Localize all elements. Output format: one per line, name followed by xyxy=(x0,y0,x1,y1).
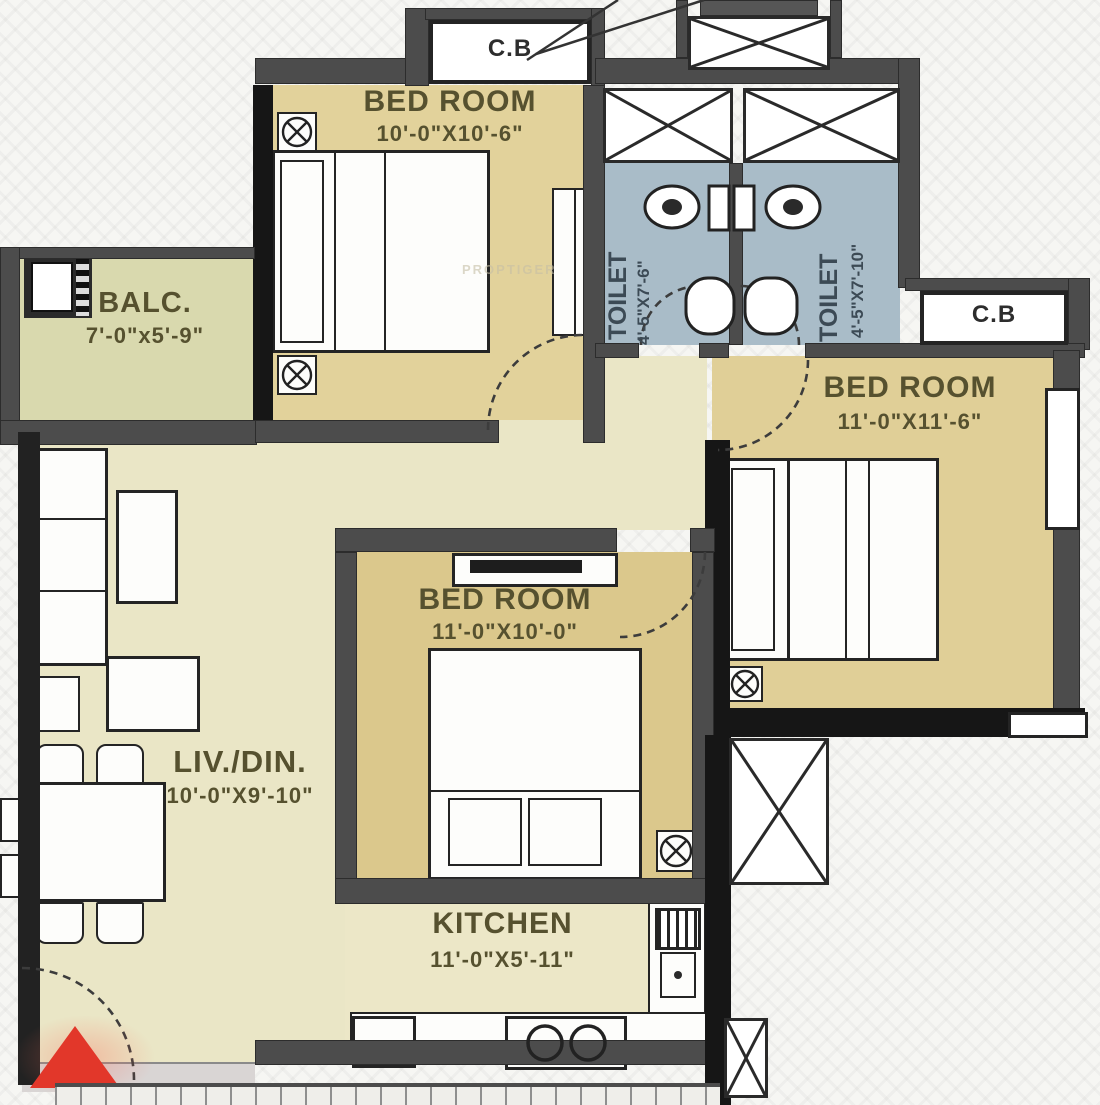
bedroom1-bed-headboard xyxy=(280,160,324,343)
living-armchair xyxy=(106,656,200,732)
wall-bedroom3-top xyxy=(335,528,617,552)
kitchen-fridge-body xyxy=(660,952,696,998)
bedroom3-bed-line xyxy=(430,790,640,792)
watermark: PROPTIGER xyxy=(462,262,557,277)
dining-chair-6 xyxy=(0,854,20,898)
kitchen-fridge-grill xyxy=(655,908,701,950)
bedroom2-label: BED ROOM xyxy=(760,372,1060,404)
bedroom3-pillow-left xyxy=(448,798,522,866)
wall-toilet-right xyxy=(898,58,920,288)
wall-bedroom1-left xyxy=(253,85,273,431)
lift-top-bar xyxy=(700,0,818,16)
bedroom1-label: BED ROOM xyxy=(300,86,600,118)
kitchen-label: KITCHEN xyxy=(380,908,625,940)
dining-chair-1 xyxy=(36,744,84,784)
ledge-box-right xyxy=(1008,712,1088,738)
wall-kitchen-top xyxy=(335,878,710,904)
bedroom2-dim: 11'-0"X11'-6" xyxy=(760,410,1060,433)
balcony-label: BALC. xyxy=(30,288,260,318)
balcony-dim: 7'-0"x5'-9" xyxy=(30,324,260,347)
wall-cb-right-top xyxy=(905,278,1085,291)
bedroom1-dim: 10'-0"X10'-6" xyxy=(300,122,600,145)
bedroom2-bed-line2 xyxy=(845,460,847,659)
wall-kitchen-bottom xyxy=(255,1040,720,1065)
bedroom2-bed-headboard xyxy=(731,468,775,651)
dining-chair-3 xyxy=(36,902,84,944)
toilet-right-label: TOILET xyxy=(815,254,844,342)
wall-cb-right-side xyxy=(1068,278,1090,350)
dining-chair-4 xyxy=(96,902,144,944)
toilet-left-dim: 4'-5"X7'-6" xyxy=(634,260,654,345)
bedroom3-exhaust-fan-box xyxy=(656,830,696,872)
wall-toilet-bottom-1 xyxy=(595,343,639,358)
cupboard-right-label: C.B xyxy=(920,302,1068,327)
wall-bedroom3-left xyxy=(335,552,357,902)
duct-small-bottom xyxy=(724,1018,768,1098)
toilet-left-label: TOILET xyxy=(604,252,633,340)
dining-chair-5 xyxy=(0,798,20,842)
kitchen-dim: 11'-0"X5'-11" xyxy=(380,948,625,971)
bedroom3-label: BED ROOM xyxy=(355,584,655,616)
wall-bedroom1-top xyxy=(255,58,427,84)
entrance-arrow xyxy=(30,1026,120,1088)
bedroom1-bed-line1 xyxy=(334,152,336,351)
duct-left xyxy=(603,88,733,163)
wall-bedroom3-top-stub xyxy=(690,528,715,552)
floor-plan: BED ROOM 10'-0"X10'-6" C.B C.B BED ROOM … xyxy=(0,0,1100,1105)
wall-bedroom1-bottom xyxy=(255,420,499,443)
wall-bedroom2-top xyxy=(805,343,1085,358)
lift-side-left xyxy=(676,0,688,58)
bedroom3-dim: 11'-0"X10'-0" xyxy=(355,620,655,643)
bedroom1-bed-line2 xyxy=(384,152,386,351)
bedroom2-nightstand xyxy=(727,666,763,702)
cupboard-top-label: C.B xyxy=(430,36,590,61)
bottom-ledge xyxy=(55,1083,720,1105)
bedroom1-nightstand-bottom xyxy=(277,355,317,395)
duct-right xyxy=(743,88,900,163)
living-label: LIV./DIN. xyxy=(115,746,365,779)
corridor-floor xyxy=(345,443,707,530)
wall-balcony-top xyxy=(18,247,255,259)
toilet-right-dim: 4'-5"X7'-10" xyxy=(848,244,868,338)
wall-cb-top-cap xyxy=(425,8,595,20)
living-dim: 10'-0"X9'-10" xyxy=(115,784,365,807)
bedroom2-bed-line3 xyxy=(868,460,870,659)
corridor-floor-north xyxy=(605,356,707,446)
lift-shaft xyxy=(688,16,830,70)
living-coffee-table xyxy=(116,490,178,604)
bedroom2-bed-line1 xyxy=(787,460,790,659)
wall-living-left xyxy=(18,432,40,1085)
bedroom3-pillow-right xyxy=(528,798,602,866)
wall-toilet-center xyxy=(729,163,743,345)
bedroom3-dresser-handle xyxy=(470,560,582,573)
bedroom1-door-gap-floor xyxy=(499,420,585,445)
duct-bottom-right xyxy=(729,738,829,885)
bedroom1-wardrobe-line xyxy=(574,190,576,334)
wall-toilet-bottom-2 xyxy=(699,343,729,358)
lift-side-right xyxy=(830,0,842,58)
wall-balcony-left xyxy=(0,247,20,427)
